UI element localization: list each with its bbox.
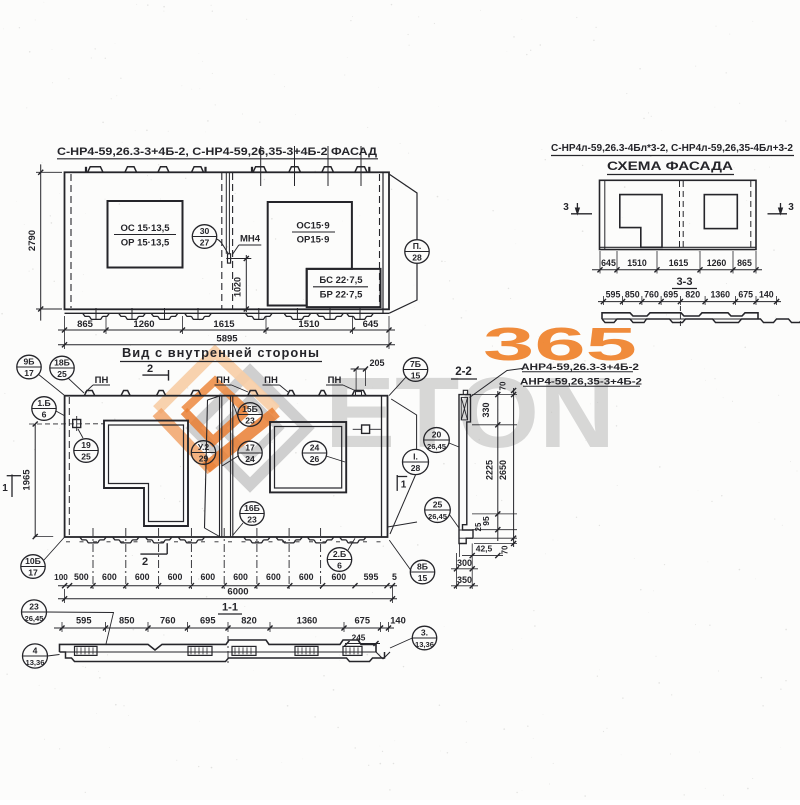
svg-text:1260: 1260 <box>707 258 727 268</box>
svg-text:19: 19 <box>81 440 91 450</box>
svg-text:ПН: ПН <box>328 375 342 386</box>
svg-text:820: 820 <box>241 616 257 626</box>
svg-text:СХЕМА ФАСАДА: СХЕМА ФАСАДА <box>607 161 733 173</box>
svg-text:18Б: 18Б <box>54 357 70 367</box>
svg-text:5895: 5895 <box>216 334 238 345</box>
svg-text:1510: 1510 <box>298 319 319 330</box>
svg-text:АНР4-59,26.3-3+4Б-2: АНР4-59,26.3-3+4Б-2 <box>521 362 639 372</box>
svg-text:42,5: 42,5 <box>476 544 493 554</box>
svg-text:600: 600 <box>331 572 346 582</box>
svg-text:6: 6 <box>42 410 47 420</box>
svg-text:25: 25 <box>81 452 91 462</box>
svg-text:760: 760 <box>644 290 659 300</box>
svg-text:20: 20 <box>432 429 442 439</box>
svg-text:5: 5 <box>392 572 397 582</box>
svg-text:850: 850 <box>119 616 135 626</box>
svg-text:4: 4 <box>33 645 38 655</box>
svg-text:500: 500 <box>74 572 89 582</box>
svg-text:10Б: 10Б <box>25 556 41 566</box>
svg-text:26,45: 26,45 <box>24 614 44 623</box>
svg-text:1: 1 <box>2 483 8 494</box>
svg-text:Вид с внутренней стороны: Вид с внутренней стороны <box>122 346 320 360</box>
svg-text:26,45: 26,45 <box>427 442 447 451</box>
svg-text:3-3: 3-3 <box>677 276 693 288</box>
svg-text:2.Б: 2.Б <box>333 549 346 559</box>
svg-text:2: 2 <box>142 556 148 568</box>
svg-text:ПН: ПН <box>216 375 230 386</box>
svg-text:2: 2 <box>147 363 153 375</box>
svg-text:330: 330 <box>481 402 491 417</box>
svg-text:29: 29 <box>199 454 209 464</box>
svg-text:Ι.: Ι. <box>413 451 418 461</box>
svg-text:595: 595 <box>606 290 621 300</box>
svg-text:25: 25 <box>57 369 67 379</box>
svg-text:МН4: МН4 <box>240 234 261 245</box>
svg-text:9Б: 9Б <box>24 356 35 366</box>
svg-text:645: 645 <box>363 319 380 330</box>
svg-text:ОС15·9: ОС15·9 <box>296 221 329 232</box>
svg-text:15: 15 <box>411 371 421 381</box>
svg-text:1360: 1360 <box>710 290 730 300</box>
svg-text:П.: П. <box>413 241 422 251</box>
svg-text:6: 6 <box>337 561 342 571</box>
svg-text:70: 70 <box>501 545 510 554</box>
svg-text:3.: 3. <box>421 627 428 637</box>
svg-text:1615: 1615 <box>213 319 235 330</box>
svg-text:1360: 1360 <box>297 616 318 626</box>
svg-text:26: 26 <box>310 454 320 464</box>
svg-text:600: 600 <box>168 572 183 582</box>
svg-text:С-НР4л-59,26.3-4Бл*3-2, С-НР4л: С-НР4л-59,26.3-4Бл*3-2, С-НР4л-59,26,35-… <box>551 142 793 154</box>
svg-text:2650: 2650 <box>498 460 508 480</box>
svg-text:1510: 1510 <box>627 258 647 268</box>
svg-text:140: 140 <box>759 290 774 300</box>
svg-text:АНР4-59,26,35-3+4Б-2: АНР4-59,26,35-3+4Б-2 <box>520 377 642 387</box>
svg-text:865: 865 <box>737 258 752 268</box>
svg-text:140: 140 <box>390 616 406 626</box>
svg-text:1965: 1965 <box>22 469 33 491</box>
svg-text:675: 675 <box>738 290 753 300</box>
svg-text:600: 600 <box>266 572 281 582</box>
svg-text:2225: 2225 <box>485 460 495 480</box>
svg-text:БС 22·7,5: БС 22·7,5 <box>319 275 363 286</box>
svg-text:595: 595 <box>76 616 92 626</box>
svg-text:ОС 15·13,5: ОС 15·13,5 <box>120 223 170 234</box>
svg-text:850: 850 <box>625 290 640 300</box>
svg-text:600: 600 <box>135 572 150 582</box>
svg-text:23: 23 <box>245 416 255 426</box>
svg-text:БР 22·7,5: БР 22·7,5 <box>320 290 363 301</box>
svg-text:645: 645 <box>601 258 616 268</box>
svg-text:205: 205 <box>369 358 384 368</box>
svg-text:24: 24 <box>310 442 320 452</box>
svg-text:ПН: ПН <box>95 375 109 386</box>
svg-text:ОР15·9: ОР15·9 <box>297 235 330 246</box>
svg-text:26,45: 26,45 <box>428 512 448 521</box>
svg-text:600: 600 <box>299 572 314 582</box>
svg-text:1615: 1615 <box>669 258 689 268</box>
svg-text:30: 30 <box>200 226 210 236</box>
svg-text:760: 760 <box>160 616 176 626</box>
svg-text:23: 23 <box>29 601 39 611</box>
svg-text:13,36: 13,36 <box>415 640 434 649</box>
svg-text:600: 600 <box>102 572 117 582</box>
svg-text:ОР 15·13,5: ОР 15·13,5 <box>121 238 170 249</box>
svg-text:820: 820 <box>685 290 700 300</box>
svg-text:70: 70 <box>499 381 508 390</box>
svg-text:8Б: 8Б <box>417 561 428 571</box>
svg-text:25: 25 <box>433 499 443 509</box>
svg-text:28: 28 <box>411 463 421 473</box>
svg-text:С-НР4-59,26.3-3+4Б-2, С-НР4-59: С-НР4-59,26.3-3+4Б-2, С-НР4-59,26,35-3+4… <box>57 146 377 158</box>
svg-text:17: 17 <box>28 568 38 578</box>
svg-text:28: 28 <box>412 253 422 263</box>
svg-text:100: 100 <box>54 573 68 582</box>
svg-text:23: 23 <box>247 515 257 525</box>
svg-text:1260: 1260 <box>133 319 154 330</box>
svg-text:595: 595 <box>364 572 379 582</box>
svg-text:675: 675 <box>354 616 370 626</box>
svg-text:У.2: У.2 <box>198 442 210 452</box>
svg-text:17: 17 <box>245 442 255 452</box>
svg-text:695: 695 <box>663 290 678 300</box>
svg-text:1-1: 1-1 <box>222 602 238 614</box>
svg-text:2790: 2790 <box>27 230 38 251</box>
svg-text:600: 600 <box>233 572 248 582</box>
svg-text:27: 27 <box>200 238 210 248</box>
svg-text:600: 600 <box>200 572 215 582</box>
svg-text:15: 15 <box>418 573 428 583</box>
svg-text:695: 695 <box>200 616 216 626</box>
svg-text:15Б: 15Б <box>242 404 258 414</box>
svg-text:1: 1 <box>401 480 407 491</box>
svg-text:16Б: 16Б <box>244 503 260 513</box>
svg-text:ПН: ПН <box>264 375 278 386</box>
svg-text:3: 3 <box>788 202 794 213</box>
svg-text:865: 865 <box>77 319 94 330</box>
svg-text:6000: 6000 <box>227 587 248 598</box>
svg-text:24: 24 <box>245 454 255 464</box>
svg-text:1.Б: 1.Б <box>37 398 50 408</box>
svg-text:25: 25 <box>474 522 483 531</box>
svg-text:17: 17 <box>24 368 34 378</box>
svg-text:1020: 1020 <box>233 277 243 297</box>
svg-text:2-2: 2-2 <box>455 366 472 378</box>
svg-text:3: 3 <box>563 202 569 213</box>
svg-text:7Б: 7Б <box>410 359 421 369</box>
svg-text:13,36: 13,36 <box>25 658 44 667</box>
